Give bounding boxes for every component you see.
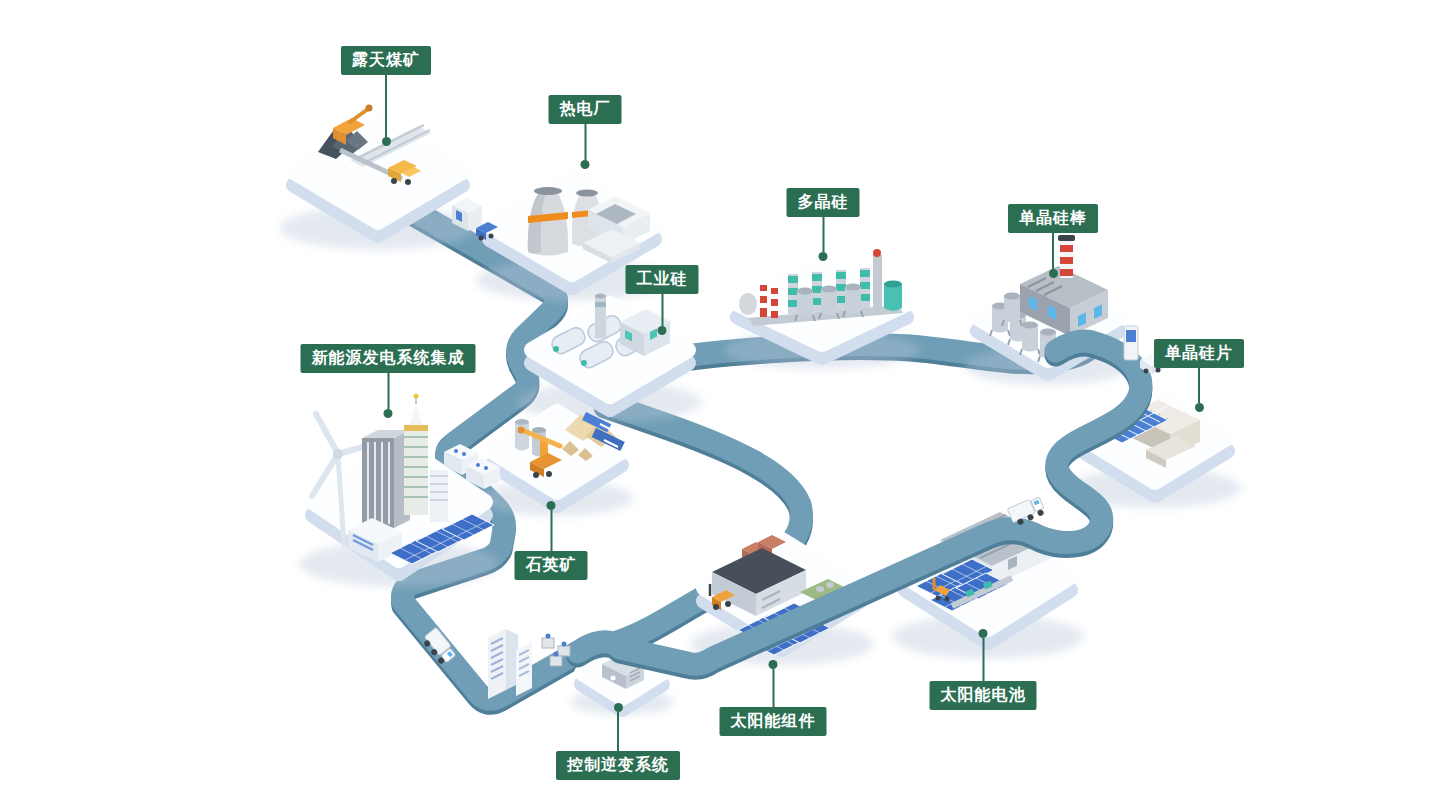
label-solar-cell: 太阳能电池 xyxy=(930,681,1037,710)
callout-dot xyxy=(384,409,393,418)
callout-mono-rod: 单晶硅棒 xyxy=(1008,204,1098,278)
callout-dot xyxy=(819,252,828,261)
callout-line xyxy=(387,373,389,409)
callout-line xyxy=(661,294,663,326)
illustration-polysilicon xyxy=(724,249,920,369)
callout-line xyxy=(584,124,586,160)
callout-system-integration: 新能源发电系统集成 xyxy=(301,344,476,418)
callout-dot xyxy=(382,137,391,146)
label-system-integration: 新能源发电系统集成 xyxy=(301,344,476,373)
label-polysilicon: 多晶硅 xyxy=(787,188,860,217)
callout-dot xyxy=(658,326,667,335)
callout-line xyxy=(617,712,619,751)
label-mono-rod: 单晶硅棒 xyxy=(1008,204,1098,233)
label-inverter-system: 控制逆变系统 xyxy=(556,751,680,780)
callout-mono-wafer: 单晶硅片 xyxy=(1154,339,1244,412)
callout-inverter-system: 控制逆变系统 xyxy=(556,703,680,780)
callout-line xyxy=(772,669,774,707)
callout-line xyxy=(550,510,552,551)
callout-solar-cell: 太阳能电池 xyxy=(930,629,1037,710)
callout-dot xyxy=(581,160,590,169)
callout-polysilicon: 多晶硅 xyxy=(787,188,860,261)
callout-line xyxy=(1198,368,1200,403)
label-quartz-mine: 石英矿 xyxy=(515,551,588,580)
callout-line xyxy=(822,217,824,252)
label-coal-mine: 露天煤矿 xyxy=(341,46,431,75)
callout-dot xyxy=(547,501,556,510)
callout-coal-mine: 露天煤矿 xyxy=(341,46,431,146)
label-mono-wafer: 单晶硅片 xyxy=(1154,339,1244,368)
callout-industrial-silicon: 工业硅 xyxy=(626,265,699,335)
callout-dot xyxy=(1049,269,1058,278)
callout-quartz-mine: 石英矿 xyxy=(515,501,588,580)
callout-dot xyxy=(769,660,778,669)
callout-thermal-plant: 热电厂 xyxy=(549,95,622,169)
callout-dot xyxy=(614,703,623,712)
callout-line xyxy=(1052,233,1054,269)
callout-solar-module: 太阳能组件 xyxy=(720,660,827,736)
callout-line xyxy=(982,638,984,681)
callout-line xyxy=(385,75,387,137)
callout-dot xyxy=(1195,403,1204,412)
industry-chain-diagram: 露天煤矿 热电厂 工业硅 多晶硅 单晶硅棒 单晶硅片 新能源发电系统集成 石英矿… xyxy=(0,0,1440,810)
buildings-near-inverter xyxy=(488,629,570,699)
callout-dot xyxy=(979,629,988,638)
label-solar-module: 太阳能组件 xyxy=(720,707,827,736)
label-thermal-plant: 热电厂 xyxy=(549,95,622,124)
label-industrial-silicon: 工业硅 xyxy=(626,265,699,294)
